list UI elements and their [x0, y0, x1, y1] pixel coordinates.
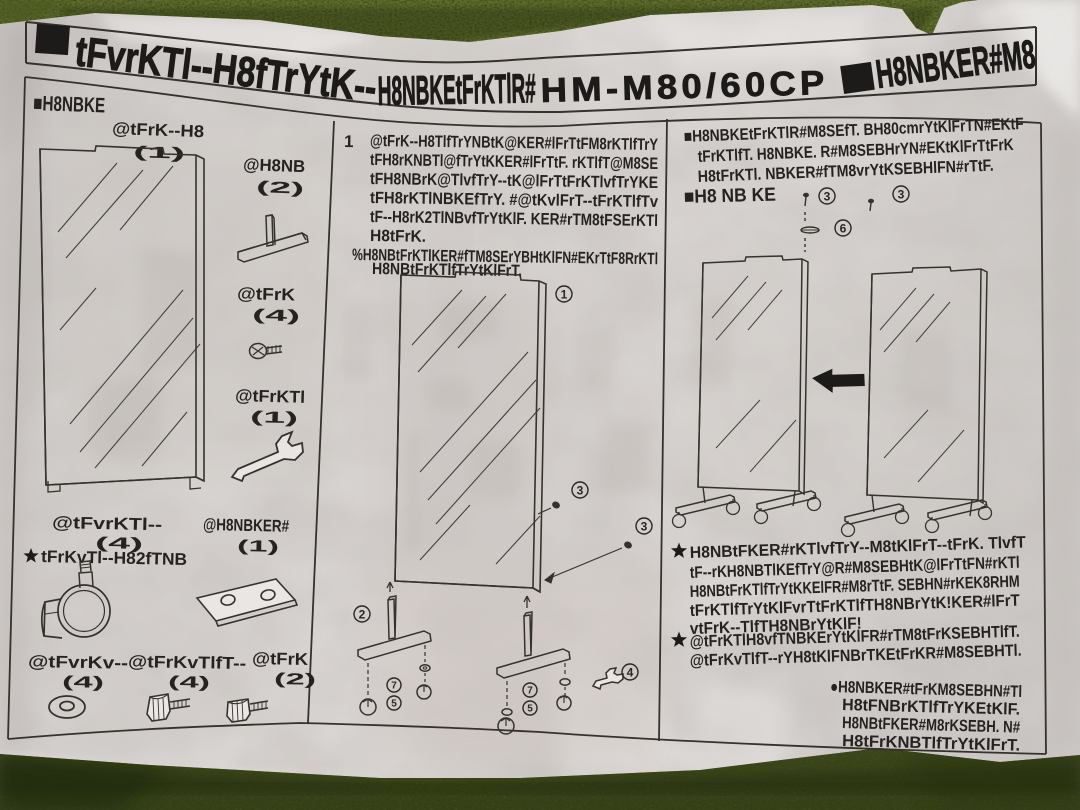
svg-text:(2): (2)	[274, 671, 316, 689]
svg-text:H8NBKEtFrKTlR#: H8NBKEtFrKTlR#	[377, 65, 536, 114]
svg-text:(1): (1)	[250, 409, 298, 427]
svg-text:(4): (4)	[62, 674, 104, 692]
svg-text:■H8 NB KE: ■H8 NB KE	[684, 185, 777, 208]
svg-text:@H8NB: @H8NB	[243, 155, 306, 176]
svg-text:6: 6	[840, 221, 847, 235]
svg-text:2: 2	[359, 607, 366, 621]
svg-text:(4): (4)	[168, 674, 210, 692]
svg-text:@tFvrKv--: @tFvrKv--	[28, 652, 128, 673]
svg-text:@tFvrKTl--: @tFvrKTl--	[52, 513, 162, 534]
svg-text:3: 3	[577, 483, 584, 497]
svg-text:HM-M80/60CP: HM-M80/60CP	[540, 64, 829, 110]
svg-text:4: 4	[627, 665, 634, 679]
svg-text:(4): (4)	[252, 307, 300, 325]
svg-text:5: 5	[527, 704, 533, 715]
svg-text:H8tFrK.: H8tFrK.	[370, 227, 426, 246]
svg-text:3: 3	[641, 519, 648, 533]
svg-text:5: 5	[391, 699, 397, 710]
svg-text:1: 1	[344, 132, 354, 151]
svg-text:3: 3	[824, 189, 831, 203]
svg-text:(2): (2)	[256, 179, 305, 198]
svg-text:@tFrKvTlfT--: @tFrKvTlfT--	[128, 652, 246, 673]
svg-text:■H8NBKE: ■H8NBKE	[33, 92, 106, 117]
svg-text:@H8NBKER#: @H8NBKER#	[203, 515, 290, 536]
svg-text:7: 7	[391, 681, 397, 692]
svg-text:@tFrK--H8: @tFrK--H8	[112, 119, 205, 141]
svg-text:(1): (1)	[237, 538, 279, 556]
svg-text:1: 1	[561, 287, 568, 301]
svg-text:7: 7	[527, 686, 533, 697]
svg-text:@tFrK: @tFrK	[237, 284, 296, 305]
svg-text:@tFrK: @tFrK	[252, 649, 309, 669]
svg-text:@tFrKTl: @tFrKTl	[235, 386, 305, 407]
svg-text:(1): (1)	[133, 144, 186, 163]
svg-text:tFrKvTl--H82fTNB: tFrKvTl--H82fTNB	[41, 547, 187, 569]
svg-text:3: 3	[898, 187, 905, 201]
